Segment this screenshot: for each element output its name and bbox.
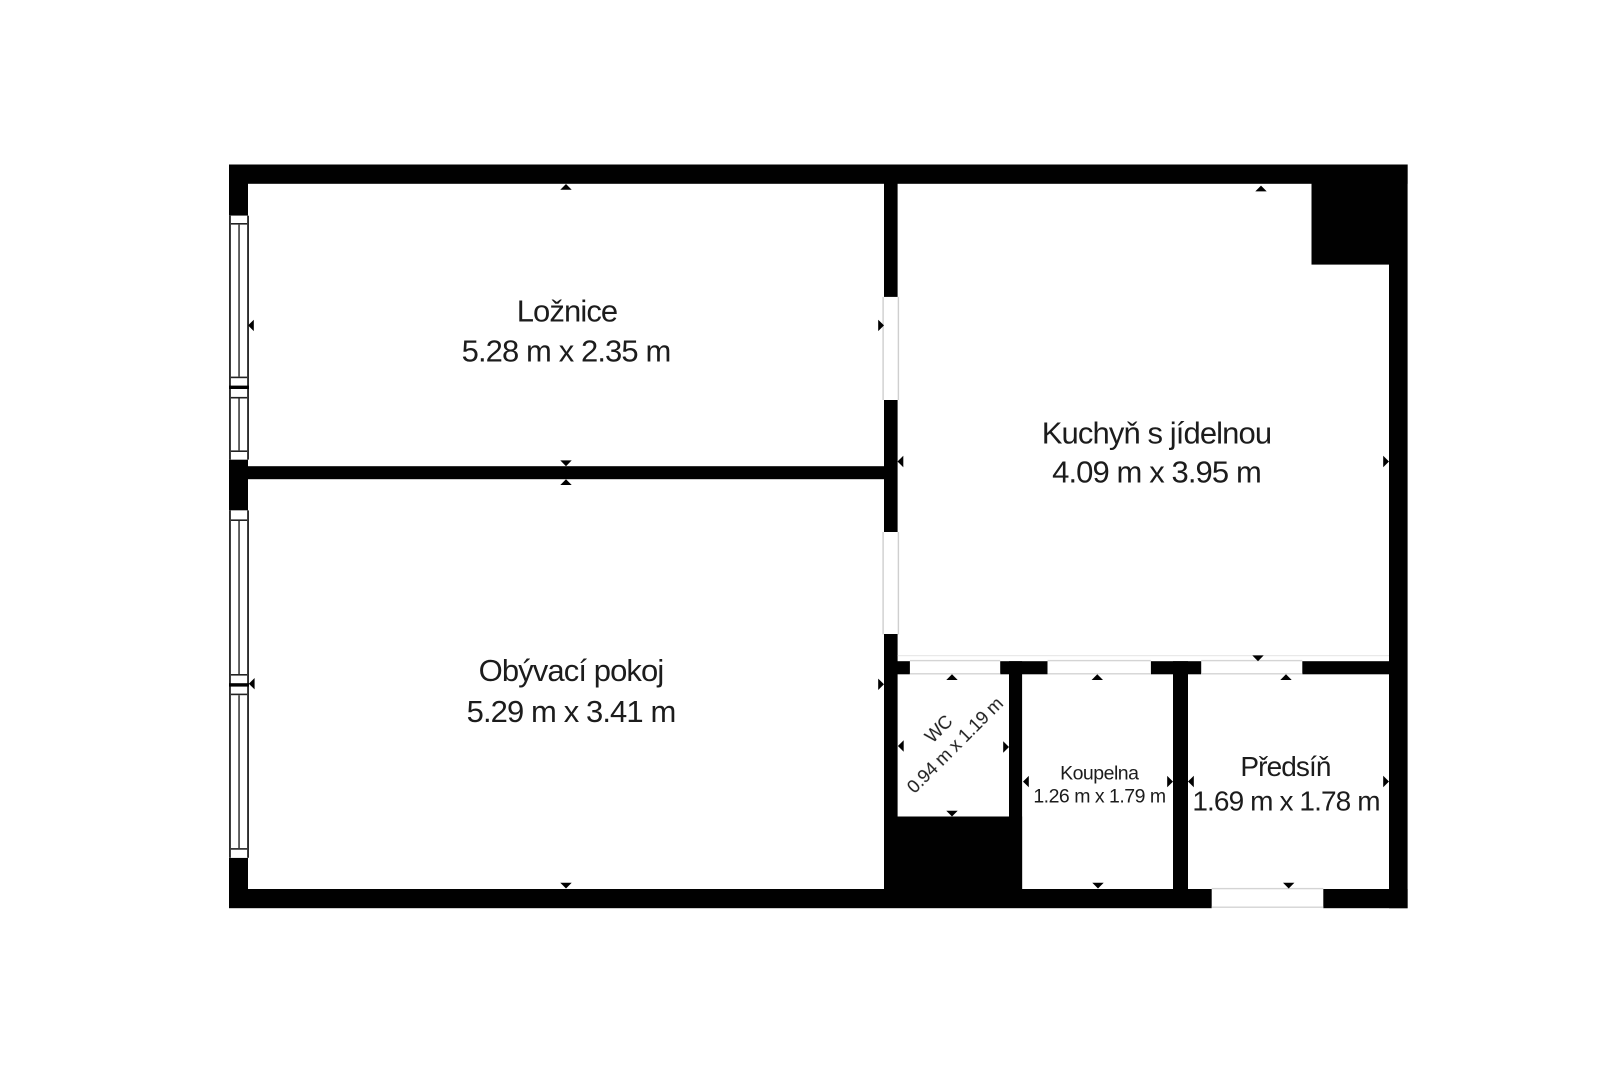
svg-text:4.09 m x 3.95 m: 4.09 m x 3.95 m [1052, 455, 1261, 490]
svg-text:Ložnice: Ložnice [517, 294, 618, 329]
svg-text:Koupelna: Koupelna [1060, 763, 1139, 785]
svg-text:Předsíň: Předsíň [1240, 751, 1330, 782]
svg-text:1.26 m x 1.79 m: 1.26 m x 1.79 m [1033, 785, 1165, 807]
svg-text:1.69 m x 1.78 m: 1.69 m x 1.78 m [1192, 786, 1379, 817]
svg-text:5.28 m x 2.35 m: 5.28 m x 2.35 m [462, 334, 671, 369]
svg-text:Kuchyň s jídelnou: Kuchyň s jídelnou [1042, 416, 1271, 451]
svg-text:5.29 m x 3.41 m: 5.29 m x 3.41 m [467, 694, 676, 729]
svg-text:Obývací pokoj: Obývací pokoj [479, 653, 664, 688]
